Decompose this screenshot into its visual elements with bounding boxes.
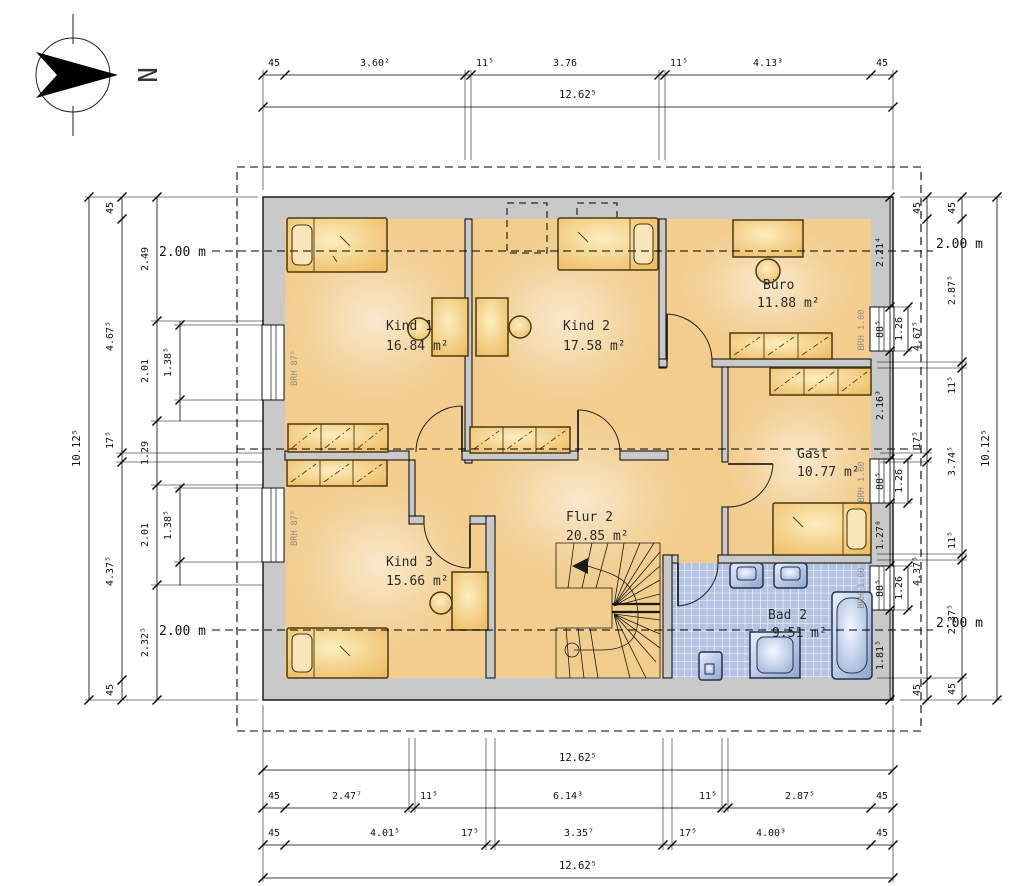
- dimension-top: 45 3.60² 11⁵ 3.76 11⁵ 4.13³ 45 12.62⁵: [259, 58, 898, 190]
- dim-label: 11⁵: [476, 58, 494, 69]
- dim-label: 2.87⁵: [785, 791, 815, 802]
- dim-label: 3.60²: [360, 58, 390, 69]
- bed: [287, 218, 387, 272]
- sill-label: BRH 1.00: [857, 310, 867, 351]
- wardrobe: [287, 460, 387, 486]
- room-area-kind3: 15.66 m²: [386, 574, 449, 589]
- shelf: [730, 333, 832, 359]
- dim-label: 1.26: [894, 469, 905, 493]
- dim-label: 2.01: [140, 523, 151, 547]
- dim-label: 11⁵: [947, 531, 958, 549]
- dim-label: 45: [876, 828, 888, 839]
- floor-plan-svg: N: [0, 0, 1010, 886]
- dim-label: 4.67⁵: [105, 321, 116, 351]
- room-label-bad2: Bad 2: [768, 608, 807, 623]
- dim-label: 45: [105, 202, 116, 214]
- north-label: N: [131, 67, 161, 83]
- dim-total: 12.62⁵: [559, 860, 597, 872]
- dim-label: 4.37⁵: [912, 556, 923, 586]
- dim-label: 1.26: [894, 317, 905, 341]
- chair: [509, 316, 531, 338]
- dim-label: 1.38⁵: [163, 510, 174, 540]
- room-area-kind1: 16.84 m²: [386, 339, 449, 354]
- toilet: [699, 652, 722, 680]
- dim-label: 6.14³: [553, 791, 583, 802]
- dim-label: 45: [947, 202, 958, 214]
- sill-label: BRH 1.00: [857, 568, 867, 609]
- room-area-buero: 11.88 m²: [757, 296, 820, 311]
- dim-label: 1.27⁸: [875, 520, 886, 550]
- dim-label: 1.29: [140, 441, 151, 465]
- dim-label: 4.00³: [756, 828, 786, 839]
- dim-label: 2.32⁵: [140, 627, 151, 657]
- compass: N: [36, 14, 161, 136]
- sill-label: BRH 1.00: [857, 462, 867, 503]
- dim-label: 4.01⁵: [370, 828, 400, 839]
- dim-label: 45: [912, 684, 923, 696]
- dim-label: 17⁵: [105, 431, 116, 449]
- dim-total: 12.62⁵: [559, 752, 597, 764]
- dim-label: 3.76: [553, 58, 577, 69]
- room-area-gast: 10.77 m²: [797, 465, 860, 480]
- dim-label: 88⁵: [875, 472, 886, 490]
- dim-total: 12.62⁵: [559, 89, 597, 101]
- sill-label: BRH 87⁵: [290, 350, 300, 386]
- room-area-bad2: 9.51 m²: [772, 626, 827, 641]
- dim-label: 4.13³: [753, 58, 783, 69]
- dim-label: 45: [105, 684, 116, 696]
- room-label-kind3: Kind 3: [386, 555, 433, 570]
- dim-label: 88⁵: [875, 579, 886, 597]
- room-label-buero: Büro: [763, 278, 794, 293]
- height-line-label: 2.00 m: [936, 237, 983, 252]
- bed: [558, 218, 658, 270]
- dim-label: 2.47⁷: [332, 791, 362, 802]
- dim-label: 3.35⁷: [564, 828, 594, 839]
- dimension-bottom: 12.62⁵ 45 2.47⁷ 11⁵ 6.14³ 11⁵ 2.87⁵ 45 4…: [259, 705, 898, 883]
- dim-label: 2.87⁵: [947, 275, 958, 305]
- dim-label: 45: [876, 58, 888, 69]
- dim-label: 17⁵: [679, 828, 697, 839]
- dim-label: 11⁵: [420, 791, 438, 802]
- dim-label: 11⁵: [670, 58, 688, 69]
- dim-label: 45: [912, 202, 923, 214]
- height-line-label: 2.00 m: [159, 245, 206, 260]
- window: [262, 488, 284, 562]
- dim-label: 45: [947, 683, 958, 695]
- dim-label: 45: [876, 791, 888, 802]
- bed: [773, 503, 871, 555]
- dim-label: 17⁵: [461, 828, 479, 839]
- dim-label: 1.81⁵: [875, 640, 886, 670]
- dim-label: 4.67⁵: [912, 321, 923, 351]
- dim-label: 2.21⁴: [875, 237, 886, 267]
- dim-label: 1.38⁵: [163, 347, 174, 377]
- dim-label: 45: [268, 828, 280, 839]
- bed: [287, 628, 388, 678]
- dim-total: 10.12⁵: [980, 429, 992, 467]
- room-area-flur2: 20.85 m²: [566, 529, 629, 544]
- room-label-kind1: Kind 1: [386, 319, 433, 334]
- washbasin: [774, 563, 807, 588]
- dim-label: 1.26: [894, 576, 905, 600]
- room-label-flur2: Flur 2: [566, 510, 613, 525]
- dim-label: 11⁵: [699, 791, 717, 802]
- north-arrow-icon: [36, 52, 118, 98]
- dim-label: 2.37⁵: [947, 604, 958, 634]
- dim-label: 11⁵: [947, 376, 958, 394]
- height-line-label: 2.00 m: [936, 616, 983, 631]
- dim-label: 17⁵: [912, 431, 923, 449]
- room-area-kind2: 17.58 m²: [563, 339, 626, 354]
- dim-label: 45: [268, 791, 280, 802]
- dim-total: 10.12⁵: [71, 429, 83, 467]
- dim-label: 2.16³: [875, 390, 886, 420]
- chair: [430, 592, 452, 614]
- height-line-label: 2.00 m: [159, 624, 206, 639]
- room-label-kind2: Kind 2: [563, 319, 610, 334]
- window: [262, 325, 284, 400]
- dim-label: 3.74⁵: [947, 446, 958, 476]
- dim-label: 2.01: [140, 359, 151, 383]
- wardrobe: [770, 368, 871, 395]
- wardrobe: [288, 424, 388, 452]
- dim-label: 45: [268, 58, 280, 69]
- sill-label: BRH 87⁵: [290, 510, 300, 546]
- dim-label: 4.37⁵: [105, 556, 116, 586]
- washbasin: [730, 563, 763, 588]
- dim-label: 2.49: [140, 247, 151, 271]
- dim-label: 88⁵: [875, 320, 886, 338]
